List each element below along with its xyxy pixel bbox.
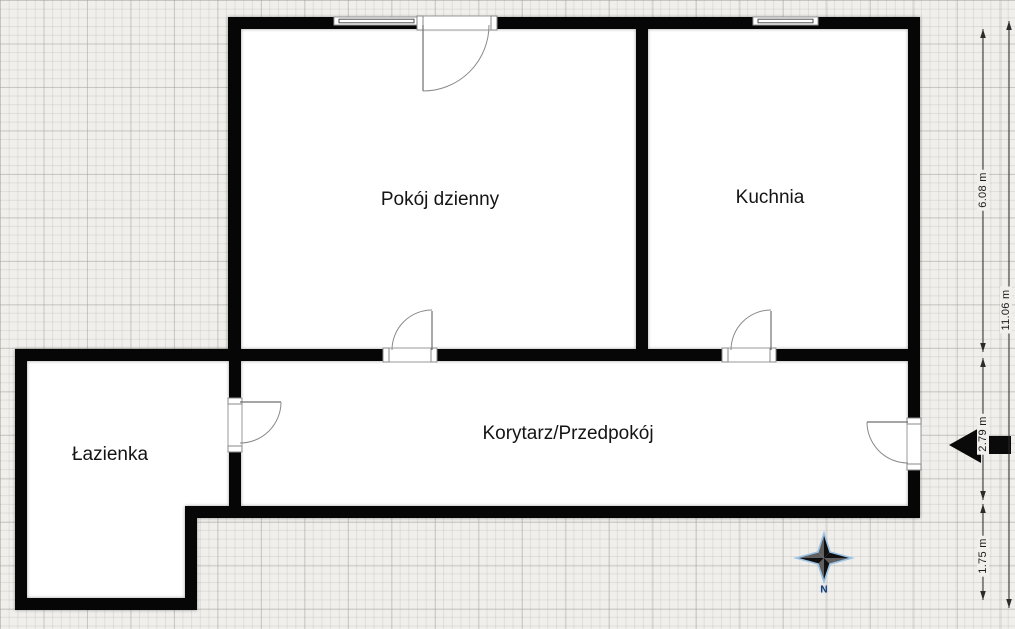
floorplan-drawing	[0, 0, 1015, 629]
wall-corridor-top-c[interactable]	[776, 349, 920, 361]
window-pokoj-dzienny[interactable]	[334, 17, 419, 25]
room-label-lazienka: Łazienka	[72, 444, 148, 466]
wall-corridor-top-a[interactable]	[15, 349, 383, 361]
room-label-kuchnia: Kuchnia	[736, 187, 805, 209]
wall-bathroom-bottom[interactable]	[15, 598, 197, 610]
dimension-label-total-height: 11.06 m	[1000, 286, 1012, 333]
wall-bathroom-left[interactable]	[15, 349, 27, 610]
dimension-label-corridor: 2.79 m	[977, 413, 989, 454]
room-label-korytarz: Korytarz/Przedpokój	[482, 423, 653, 445]
compass-rose-icon[interactable]	[796, 533, 852, 582]
wall-bathroom-right-lower[interactable]	[229, 452, 241, 506]
floorplan-canvas: Pokój dzienny Kuchnia Korytarz/Przedpokó…	[0, 0, 1015, 629]
wall-bathroom-step[interactable]	[185, 506, 197, 610]
compass-north-label: N	[820, 585, 827, 596]
window-kuchnia[interactable]	[753, 17, 818, 25]
wall-left-upper[interactable]	[228, 17, 241, 361]
wall-bathroom-right-upper[interactable]	[229, 361, 241, 398]
room-lazienka-floor[interactable]	[25, 358, 187, 602]
wall-corridor-bottom[interactable]	[185, 506, 920, 518]
dimension-label-bottom-section: 1.75 m	[977, 535, 989, 576]
room-label-pokoj-dzienny: Pokój dzienny	[381, 189, 499, 211]
dimension-label-top-section: 6.08 m	[977, 169, 989, 210]
wall-divider-pokoj-kuchnia[interactable]	[636, 23, 648, 353]
wall-corridor-top-b[interactable]	[437, 349, 722, 361]
